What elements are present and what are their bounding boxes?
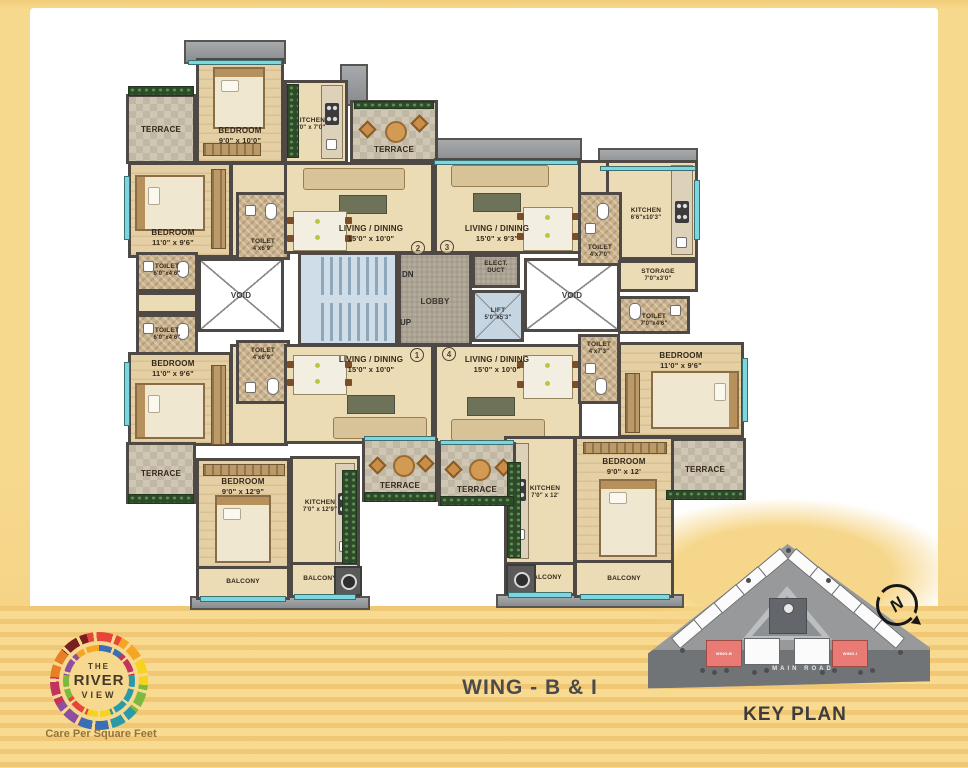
- room-label: TOILET4'x6'9": [239, 238, 287, 253]
- planter-strip: [507, 462, 521, 558]
- logo-line-the: THE: [88, 662, 110, 671]
- main-road-label: MAIN ROAD: [748, 666, 858, 672]
- room-label: LIVING / DINING15'0" x 10'0": [311, 224, 431, 243]
- keyplan-title: KEY PLAN: [730, 704, 860, 726]
- window-sill: [742, 358, 748, 422]
- window-sill: [188, 60, 282, 65]
- room-balcony-bl-a: BALCONY: [196, 566, 290, 600]
- room-toilet-entry-upper: TOILET4'x6'9": [236, 192, 290, 260]
- room-label: ELECT.DUCT: [475, 260, 517, 275]
- room-living-top-left: LIVING / DINING15'0" x 10'0": [284, 162, 434, 254]
- tree-dot: [746, 578, 751, 583]
- keyplan-wing-i: WING-I: [832, 640, 868, 667]
- tree-dot: [786, 548, 791, 553]
- room-lobby: LOBBY: [398, 252, 472, 346]
- room-bedroom-bottom-left: BEDROOM9'0" x 12'9": [196, 458, 290, 570]
- room-label: KITCHEN7'0" x 12': [517, 485, 573, 500]
- window-sill: [294, 594, 356, 600]
- tree-dot: [898, 650, 903, 655]
- flat-number-4: 4: [442, 347, 456, 361]
- room-label: BEDROOM11'0" x 9'6": [117, 359, 229, 378]
- room-label: LIVING / DINING15'0" x 10'0": [415, 355, 579, 374]
- flat-number-2: 2: [411, 241, 425, 255]
- room-label: LOBBY: [401, 297, 469, 307]
- room-toilet-right-lower: TOILET4'x7'3": [578, 334, 620, 404]
- room-elect-duct: ELECT.DUCT: [472, 254, 520, 288]
- tree-dot: [680, 648, 685, 653]
- window-sill: [364, 436, 436, 441]
- room-label: TERRACE: [129, 469, 193, 479]
- window-sill: [124, 362, 130, 426]
- room-void-right: VOID: [524, 258, 620, 332]
- tree-dot: [724, 668, 729, 673]
- tree-dot: [858, 670, 863, 675]
- logo-line-river: RIVER: [74, 672, 125, 689]
- room-toilet-right-upper: TOILET7'0"x4'6": [618, 296, 690, 334]
- river-view-logo: THE RIVER VIEW: [50, 632, 148, 730]
- utility-box: [506, 564, 536, 594]
- logo-line-view: VIEW: [81, 690, 116, 700]
- window-sill: [124, 176, 130, 240]
- room-bedroom-bottom-right: BEDROOM9'0" x 12': [574, 436, 674, 566]
- room-bedroom-left-upper: BEDROOM11'0" x 9'6": [128, 162, 232, 258]
- room-label: TOILET7'0"x4'6": [621, 313, 687, 328]
- room-bedroom-left-lower: BEDROOM11'0" x 9'6": [128, 352, 232, 446]
- room-label: TOILET4'x7'0": [581, 244, 619, 259]
- window-sill: [440, 440, 514, 445]
- stairs-up-label: UP: [400, 318, 411, 327]
- planter-strip: [128, 86, 194, 96]
- tree-dot: [870, 668, 875, 673]
- room-label: BALCONY: [199, 578, 287, 586]
- room-label: TERRACE: [441, 485, 513, 495]
- room-void-left: VOID: [198, 258, 284, 332]
- room-label: TOILET6'0"x4'6": [139, 327, 195, 342]
- room-terrace-top-left: TERRACE: [126, 94, 196, 164]
- room-bedroom-top-left: BEDROOM9'0" x 10'0": [196, 58, 284, 164]
- room-toilet-left-lower: TOILET6'0"x4'6": [136, 314, 198, 356]
- wing-title: WING - B & I: [420, 676, 640, 700]
- staircase: [298, 252, 398, 346]
- room-label: VOID: [201, 291, 281, 301]
- room-label: TOILET4'x6'9": [239, 347, 287, 362]
- tree-dot: [700, 668, 705, 673]
- room-toilet-top-right: TOILET4'x7'0": [578, 192, 622, 266]
- room-balcony-br-b: BALCONY: [574, 560, 674, 598]
- floor-plan-page: TERRACE BEDROOM9'0" x 10'0" KITCHEN7'0" …: [0, 0, 968, 768]
- tree-dot: [826, 578, 831, 583]
- room-label: LIVING / DINING15'0" x 9'3": [415, 224, 579, 243]
- room-lift: LIFT5'0"x5'3": [472, 290, 524, 342]
- room-storage: STORAGE7'0"x3'0": [618, 260, 698, 292]
- window-sill: [600, 166, 696, 171]
- room-terrace-top-center: TERRACE: [350, 100, 438, 162]
- planter-strip: [364, 492, 436, 502]
- room-toilet-entry-lower: TOILET4'x6'9": [236, 340, 290, 404]
- logo-tagline: Care Per Square Feet: [26, 728, 176, 740]
- logo-text: THE RIVER VIEW: [50, 632, 148, 730]
- duct-strip: [136, 292, 198, 314]
- room-label: VOID: [527, 291, 617, 301]
- planter-strip: [666, 490, 744, 500]
- window-sill: [434, 160, 578, 165]
- room-toilet-left-upper: TOILET6'0"x4'6": [136, 252, 198, 292]
- room-label: TERRACE: [667, 465, 743, 475]
- room-label: LIFT5'0"x5'3": [475, 307, 521, 322]
- flat-number-1: 1: [410, 348, 424, 362]
- planter-strip: [354, 101, 434, 109]
- planter-strip: [128, 494, 194, 504]
- tree-dot: [712, 670, 717, 675]
- room-label: KITCHEN7'0" x 7'0": [275, 117, 345, 132]
- room-label: TERRACE: [353, 145, 435, 155]
- room-label: BEDROOM9'0" x 12': [577, 457, 671, 476]
- window-sill: [508, 592, 572, 598]
- room-label: BALCONY: [577, 575, 671, 583]
- flat-number-3: 3: [440, 240, 454, 254]
- keyplan-wing-b: WING-B: [706, 640, 742, 667]
- room-living-top-right: LIVING / DINING15'0" x 9'3": [434, 158, 582, 254]
- stairs-dn-label: DN: [402, 270, 414, 279]
- room-label: BEDROOM9'0" x 12'9": [199, 477, 287, 496]
- keyplan-building: [744, 638, 780, 665]
- utility-box: [334, 566, 362, 596]
- room-label: BEDROOM11'0" x 9'6": [621, 351, 741, 370]
- room-label: TERRACE: [129, 125, 193, 135]
- keyplan-building: [794, 638, 830, 665]
- room-bedroom-right: BEDROOM11'0" x 9'6": [618, 342, 744, 438]
- room-living-bottom-right: LIVING / DINING15'0" x 10'0": [434, 344, 582, 444]
- window-sill: [200, 596, 286, 602]
- keyplan-clubhouse: [769, 598, 807, 634]
- room-label: BEDROOM9'0" x 10'0": [199, 126, 281, 145]
- planter-strip: [440, 496, 514, 506]
- planter-strip: [342, 470, 357, 564]
- window-sill: [694, 180, 700, 240]
- planter-strip: [287, 84, 299, 158]
- room-label: BEDROOM11'0" x 9'6": [117, 228, 229, 247]
- north-arrow-icon: N: [876, 584, 918, 626]
- room-label: STORAGE7'0"x3'0": [621, 268, 695, 283]
- room-label: TOILET6'0"x4'6": [139, 263, 195, 278]
- window-sill: [580, 594, 670, 600]
- room-label: TERRACE: [365, 481, 435, 491]
- room-label: TOILET4'x7'3": [581, 341, 617, 356]
